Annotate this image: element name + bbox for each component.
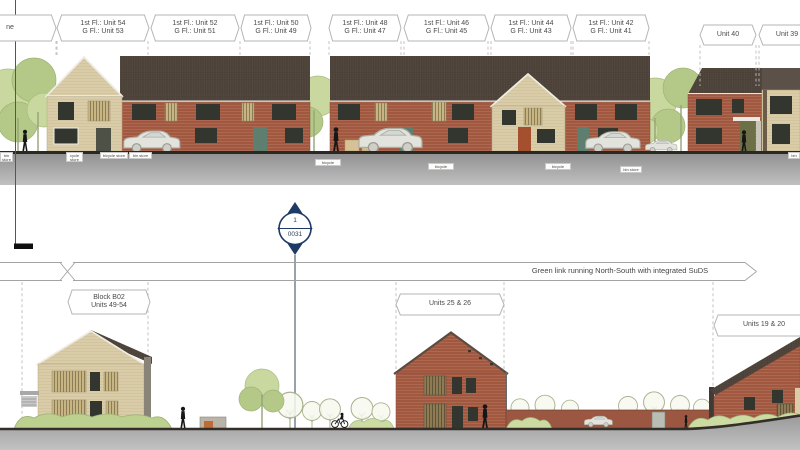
elevation-drawing: [0, 0, 800, 450]
tag-line1: Units 25 & 26: [429, 300, 471, 309]
tag-line1: 1st Fl.: Unit 48: [342, 20, 387, 29]
tag-line1: 1st Fl.: Unit 52: [172, 20, 217, 29]
tag-text: Units 25 & 26: [429, 300, 471, 309]
unit-tag-48-47: 1st Fl.: Unit 48G Fl.: Unit 47: [329, 15, 401, 41]
tag-line2: G Fl.: Unit 41: [588, 28, 633, 37]
block-tag-units-19-20: Units 19 & 20: [714, 315, 800, 336]
store-tag: bicycle store: [100, 152, 128, 159]
tag-text: 1st Fl.: Unit 42G Fl.: Unit 41: [588, 20, 633, 37]
pedestrian: [180, 407, 185, 429]
section-sheet-number: 0031: [281, 231, 309, 238]
unit-tag-50-49: 1st Fl.: Unit 50G Fl.: Unit 49: [241, 15, 311, 41]
store-tag: bin store: [129, 152, 152, 159]
tag-text: Unit 40: [717, 31, 739, 40]
tag-line1: 1st Fl.: Unit 42: [588, 20, 633, 29]
unit-tag-54-53: 1st Fl.: Unit 54G Fl.: Unit 53: [57, 15, 149, 41]
unit-tag-46-45: 1st Fl.: Unit 46G Fl.: Unit 45: [404, 15, 489, 41]
tag-line1: 1st Fl.: Unit 44: [508, 20, 553, 29]
tag-line2: Units 49-54: [91, 302, 127, 311]
tag-text: 1st Fl.: Unit 54G Fl.: Unit 53: [80, 20, 125, 37]
top-terrace-a: [46, 56, 310, 152]
tag-text: 1st Fl.: Unit 48G Fl.: Unit 47: [342, 20, 387, 37]
unit-tag-39: Unit 39: [759, 25, 800, 45]
tag-text: 1st Fl.: Unit 52G Fl.: Unit 51: [172, 20, 217, 37]
tag-line2: G Fl.: Unit 49: [253, 28, 298, 37]
store-tag: bin store: [620, 166, 642, 173]
bench-store: [200, 417, 226, 428]
tag-line1: Block B02: [91, 294, 127, 303]
tag-line2: G Fl.: Unit 47: [342, 28, 387, 37]
tag-line1: ne: [6, 24, 14, 33]
tag-line1: Units 19 & 20: [743, 321, 785, 330]
section-detail-number: 1: [282, 217, 308, 224]
solid-tree: [239, 369, 284, 428]
tag-line2: G Fl.: Unit 43: [508, 28, 553, 37]
block-tag-units-25-26: Units 25 & 26: [396, 294, 504, 315]
tag-line2: G Fl.: Unit 51: [172, 28, 217, 37]
tag-line1: Unit 40: [717, 31, 739, 40]
tag-line1: 1st Fl.: Unit 46: [424, 20, 469, 29]
store-tag: bin store: [788, 152, 800, 159]
block-tag-b02: Block B02Units 49-54: [68, 290, 150, 314]
tag-text: Units 19 & 20: [743, 321, 785, 330]
roof: [120, 56, 310, 102]
tag-text: 1st Fl.: Unit 44G Fl.: Unit 43: [508, 20, 553, 37]
unit-tag-52-51: 1st Fl.: Unit 52G Fl.: Unit 51: [151, 15, 239, 41]
elevation-sheet: ne 1st Fl.: Unit 54G Fl.: Unit 53 1st Fl…: [0, 0, 800, 450]
tag-text: Unit 39: [776, 31, 798, 40]
tag-text: ne: [6, 24, 14, 33]
tag-text: 1st Fl.: Unit 50G Fl.: Unit 49: [253, 20, 298, 37]
units-25-26-building: [394, 333, 508, 430]
unit-tag-40: Unit 40: [700, 25, 756, 45]
store-tag: bicycle store: [315, 159, 341, 166]
tag-text: Block B02Units 49-54: [91, 294, 127, 311]
store-tag: cycle store: [66, 152, 83, 162]
unit-tag-partial: ne: [0, 15, 56, 41]
tag-line1: Unit 39: [776, 31, 798, 40]
unit-tag-44-43: 1st Fl.: Unit 44G Fl.: Unit 43: [491, 15, 571, 41]
green-link-label: Green link running North-South with inte…: [500, 266, 740, 275]
tag-line1: 1st Fl.: Unit 50: [253, 20, 298, 29]
store-tag: bin store: [0, 152, 13, 162]
gable: [47, 57, 122, 96]
store-tag: bicycle store: [545, 163, 571, 170]
unit-tag-42-41: 1st Fl.: Unit 42G Fl.: Unit 41: [573, 15, 649, 41]
store-tag: bicycle store: [428, 163, 454, 170]
tag-line1: 1st Fl.: Unit 54: [80, 20, 125, 29]
tag-line2: G Fl.: Unit 45: [424, 28, 469, 37]
tag-text: 1st Fl.: Unit 46G Fl.: Unit 45: [424, 20, 469, 37]
tag-line2: G Fl.: Unit 53: [80, 28, 125, 37]
